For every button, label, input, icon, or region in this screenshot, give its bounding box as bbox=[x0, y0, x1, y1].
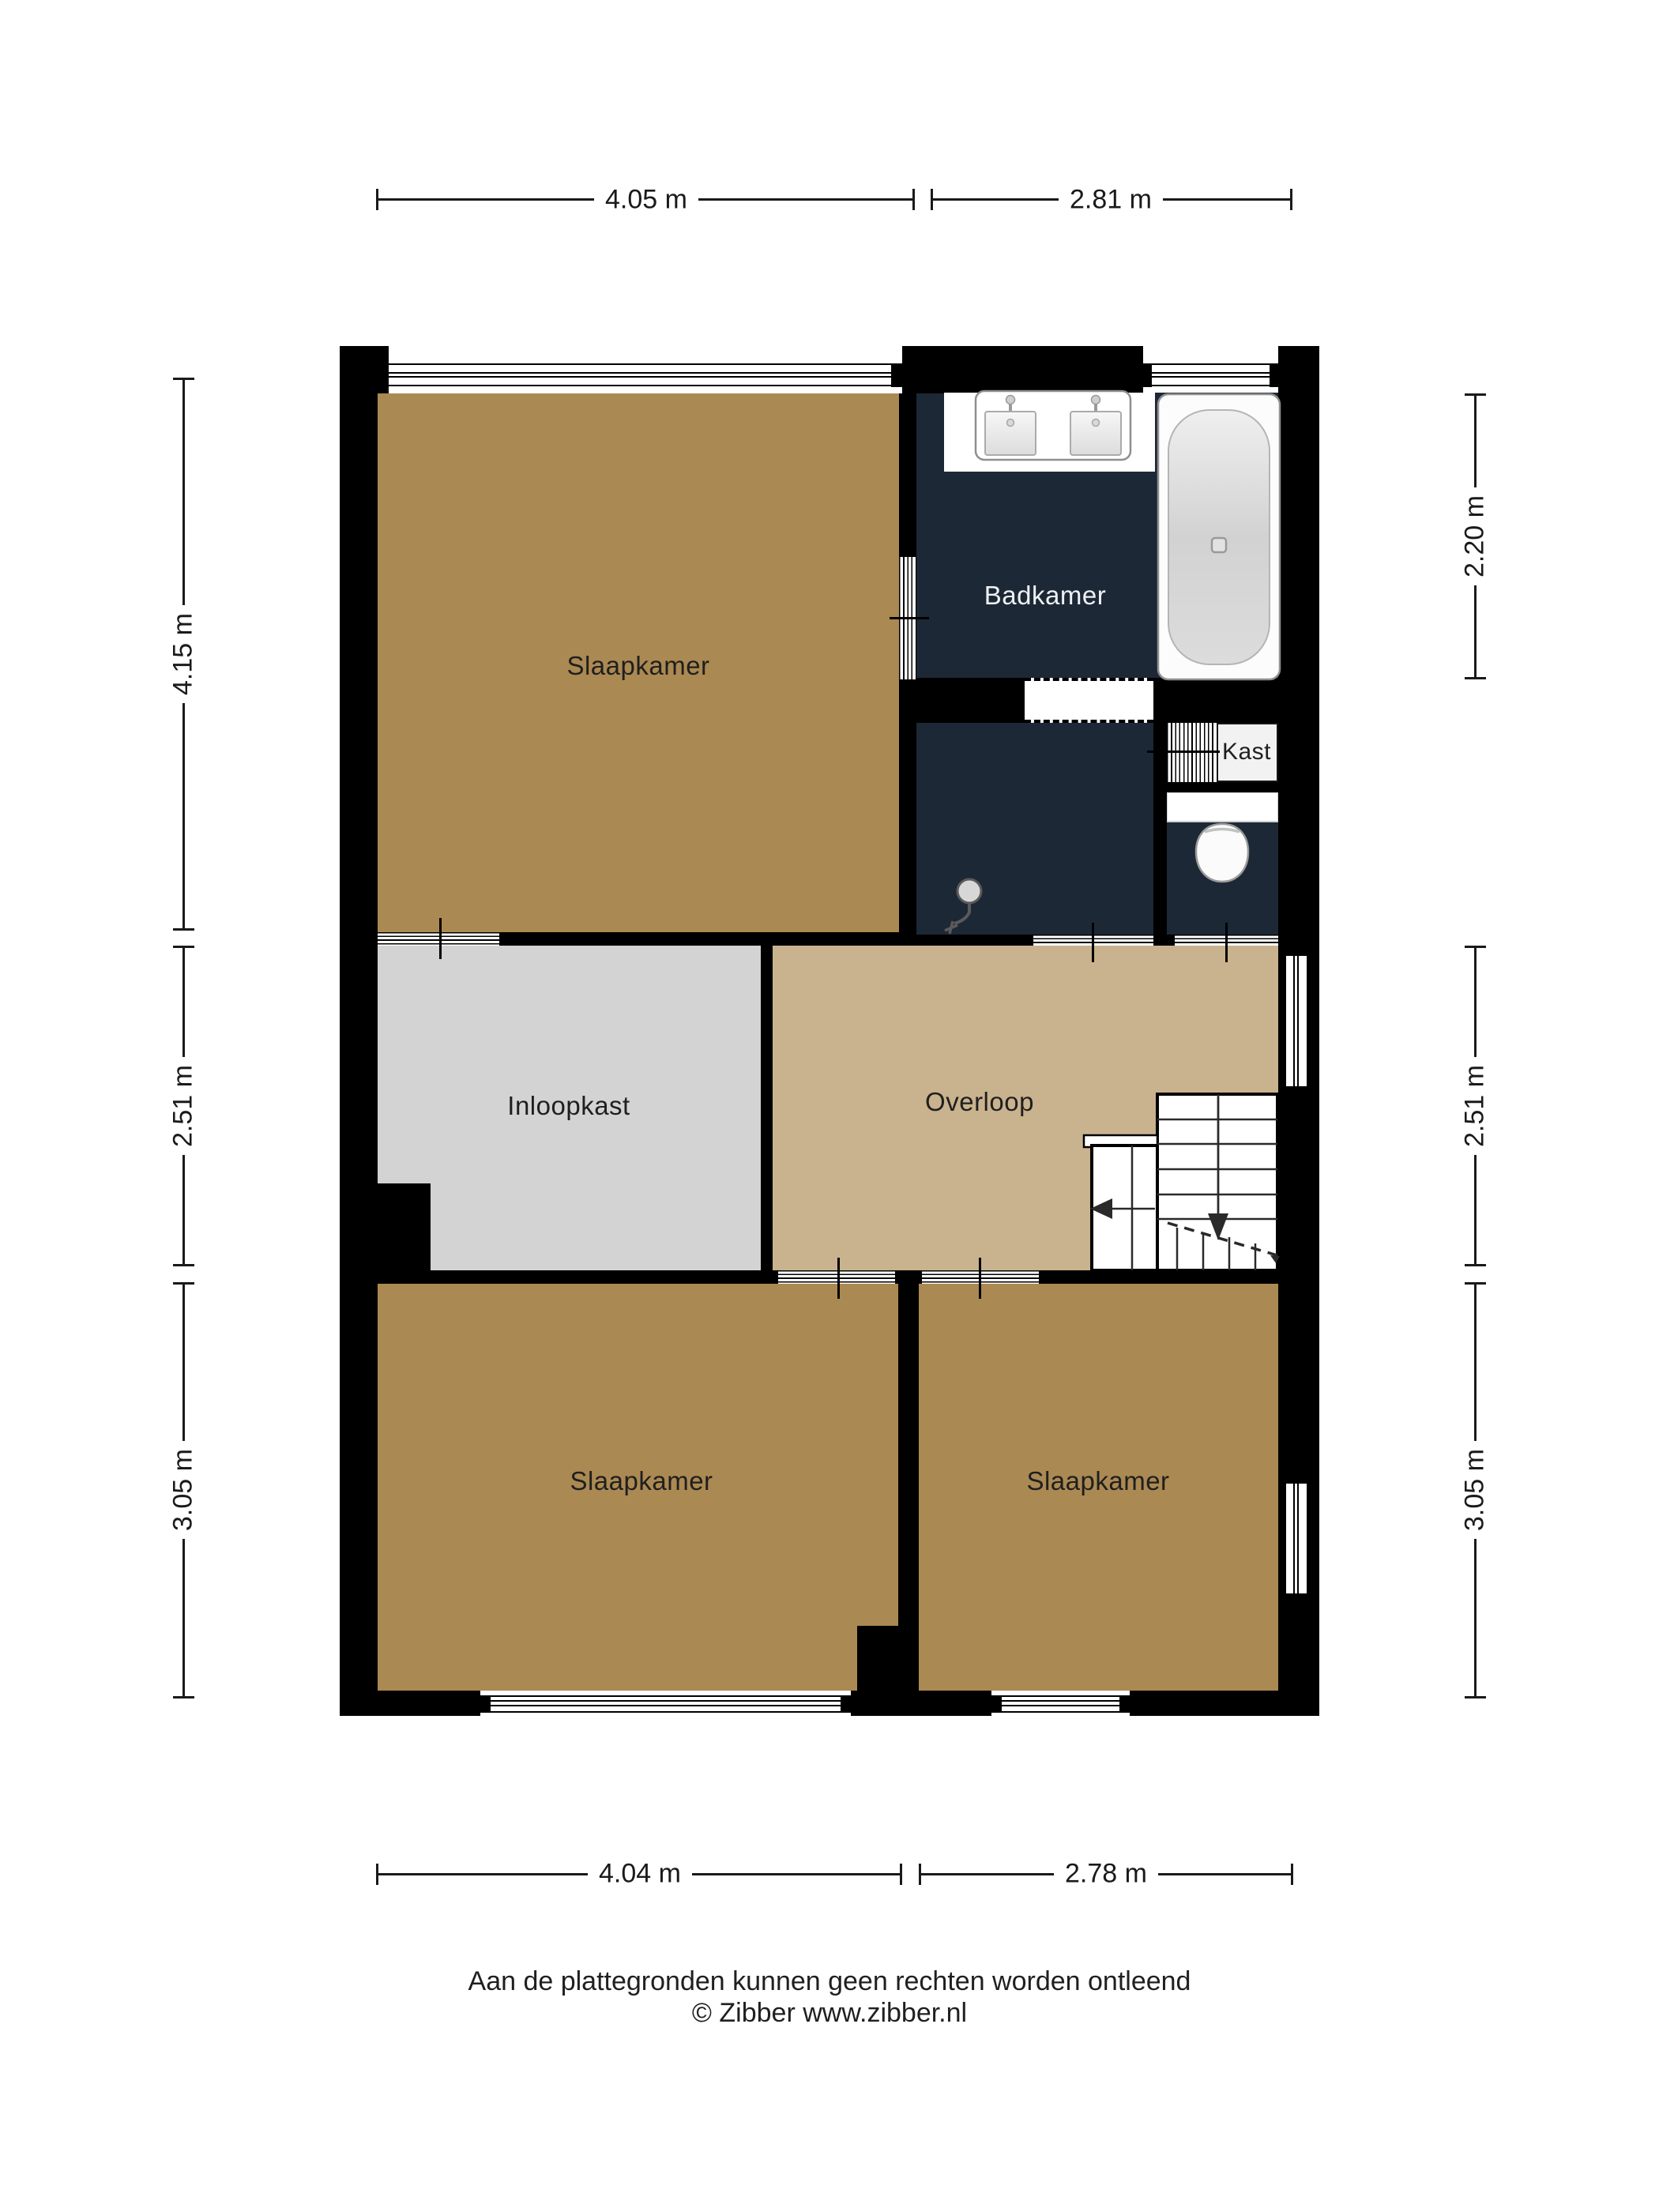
window-cap bbox=[1270, 363, 1278, 387]
door-tick bbox=[979, 1258, 981, 1299]
dim-label-bottom-1: 4.04 m bbox=[588, 1857, 692, 1891]
dim-tick bbox=[1465, 1696, 1486, 1698]
dim-tick bbox=[376, 1864, 378, 1885]
dim-tick bbox=[173, 1282, 194, 1285]
dim-tick bbox=[1291, 1864, 1293, 1885]
label-slaapkamer-rechts: Slaapkamer bbox=[1026, 1466, 1169, 1496]
window-top-right bbox=[1152, 363, 1270, 386]
stairs-icon bbox=[1082, 1090, 1285, 1277]
window-cap bbox=[1285, 1086, 1310, 1097]
wall-mid-vertical-upper bbox=[899, 393, 916, 557]
dim-tick bbox=[376, 189, 378, 210]
dim-tick bbox=[173, 378, 194, 380]
dim-label-top-2: 2.81 m bbox=[1059, 183, 1163, 217]
shower-icon bbox=[939, 877, 987, 939]
toilet-icon bbox=[1167, 792, 1278, 935]
window-cap bbox=[1143, 363, 1152, 387]
door-tick bbox=[890, 617, 929, 619]
window-cap bbox=[1285, 946, 1310, 956]
dim-tick bbox=[1465, 393, 1486, 396]
label-badkamer: Badkamer bbox=[984, 581, 1106, 611]
window-cap bbox=[841, 1695, 851, 1713]
dim-tick bbox=[1465, 946, 1486, 948]
wall-inloopkast-east bbox=[761, 946, 773, 1270]
wall-top-header bbox=[902, 346, 1143, 393]
wall-slaapkamer-inloopkast bbox=[499, 932, 899, 946]
window-cap bbox=[891, 363, 902, 387]
door-overloop-slaapkamer-links bbox=[778, 1270, 895, 1284]
door-tick bbox=[1092, 923, 1094, 962]
wall-bath-south-pier bbox=[1153, 935, 1175, 946]
dim-label-top-1: 4.05 m bbox=[594, 183, 698, 217]
dim-tick bbox=[931, 189, 933, 210]
floorplan-canvas: Slaapkamer Badkamer Kast Inloopkast Over… bbox=[0, 0, 1659, 2212]
wall-bedroom-divider-jog bbox=[857, 1626, 919, 1691]
dim-label-right-3: 3.05 m bbox=[1458, 1441, 1492, 1539]
dim-label-left-3: 3.05 m bbox=[167, 1441, 201, 1539]
dim-tick bbox=[173, 928, 194, 931]
bathtub-icon bbox=[1157, 393, 1281, 681]
dim-tick bbox=[919, 1864, 921, 1885]
dim-label-right-2: 2.51 m bbox=[1458, 1057, 1492, 1155]
window-top-left bbox=[389, 363, 891, 386]
kast-leader-line bbox=[1147, 750, 1220, 753]
window-cap bbox=[378, 363, 389, 387]
label-inloopkast: Inloopkast bbox=[507, 1091, 630, 1121]
footer-disclaimer: Aan de plattegronden kunnen geen rechten… bbox=[0, 1966, 1659, 1997]
dim-tick bbox=[1465, 677, 1486, 679]
footer: Aan de plattegronden kunnen geen rechten… bbox=[0, 1966, 1659, 2029]
label-slaapkamer-links: Slaapkamer bbox=[570, 1466, 713, 1496]
dim-tick bbox=[1465, 1264, 1486, 1266]
exterior-wall-bottom-b bbox=[851, 1691, 991, 1716]
door-slaapkamer-inloopkast bbox=[378, 932, 499, 946]
window-right-overloop bbox=[1285, 956, 1308, 1086]
door-tick bbox=[439, 918, 442, 959]
footer-copyright: © Zibber www.zibber.nl bbox=[0, 1997, 1659, 2029]
wall-toilet-west bbox=[1153, 723, 1167, 935]
wall-bedroom-divider bbox=[898, 1270, 919, 1626]
door-badkamer-opening bbox=[1025, 678, 1153, 723]
dim-tick bbox=[1290, 189, 1292, 210]
exterior-wall-left bbox=[340, 346, 378, 1716]
dim-tick bbox=[900, 1864, 902, 1885]
window-cap bbox=[1285, 1473, 1310, 1484]
dim-label-bottom-2: 2.78 m bbox=[1054, 1857, 1158, 1891]
dim-label-left-2: 2.51 m bbox=[167, 1057, 201, 1155]
exterior-wall-bottom-a bbox=[340, 1691, 480, 1716]
window-cap bbox=[1285, 1593, 1310, 1604]
dim-tick bbox=[173, 946, 194, 948]
window-cap bbox=[1119, 1695, 1130, 1713]
dim-label-right-1: 2.20 m bbox=[1458, 487, 1492, 585]
double-sink-icon bbox=[974, 389, 1132, 462]
label-kast: Kast bbox=[1222, 739, 1271, 766]
label-slaapkamer-top: Slaapkamer bbox=[566, 651, 709, 681]
wall-badkamer-south-right bbox=[1153, 678, 1278, 723]
door-tick bbox=[837, 1258, 840, 1299]
dim-tick bbox=[173, 1264, 194, 1266]
wall-midband-south-a bbox=[378, 1270, 778, 1284]
dim-tick bbox=[912, 189, 915, 210]
dim-label-left-1: 4.15 m bbox=[167, 605, 201, 703]
label-overloop: Overloop bbox=[925, 1087, 1034, 1117]
window-cap bbox=[991, 1695, 1002, 1713]
exterior-wall-bottom-c bbox=[1130, 1691, 1319, 1716]
window-bottom-left bbox=[491, 1695, 841, 1713]
wall-notch-block bbox=[340, 1183, 431, 1284]
window-right-bedroom bbox=[1285, 1484, 1308, 1593]
dim-tick bbox=[173, 1696, 194, 1698]
wall-badkamer-south-left bbox=[916, 678, 1025, 723]
window-cap bbox=[480, 1695, 491, 1713]
wall-mid-vertical-lower bbox=[899, 679, 916, 935]
window-bottom-right bbox=[1002, 1695, 1119, 1713]
dim-tick bbox=[1465, 1282, 1486, 1285]
